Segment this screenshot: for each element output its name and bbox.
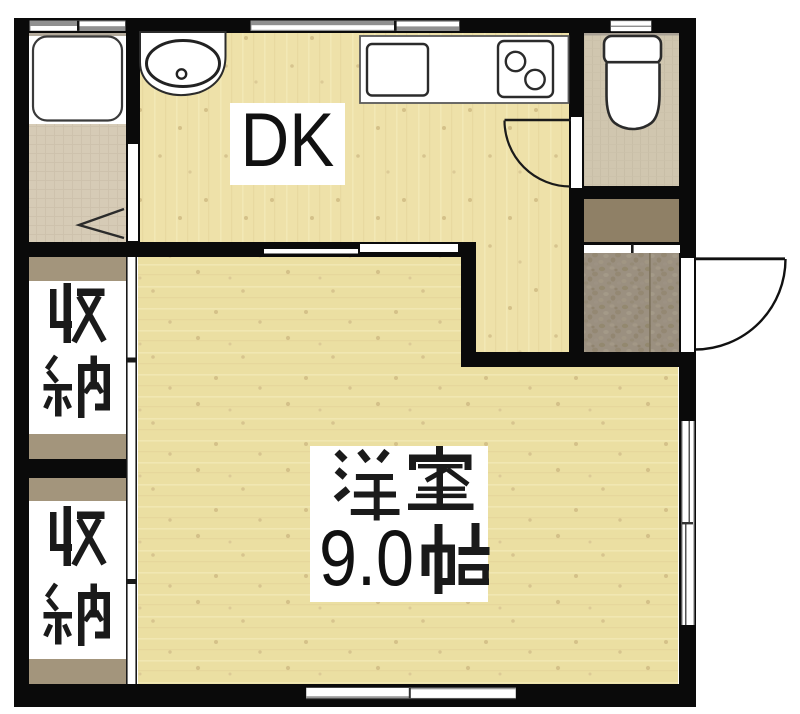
svg-text:DK: DK — [241, 98, 335, 183]
svg-text:9.0: 9.0 — [319, 514, 414, 603]
